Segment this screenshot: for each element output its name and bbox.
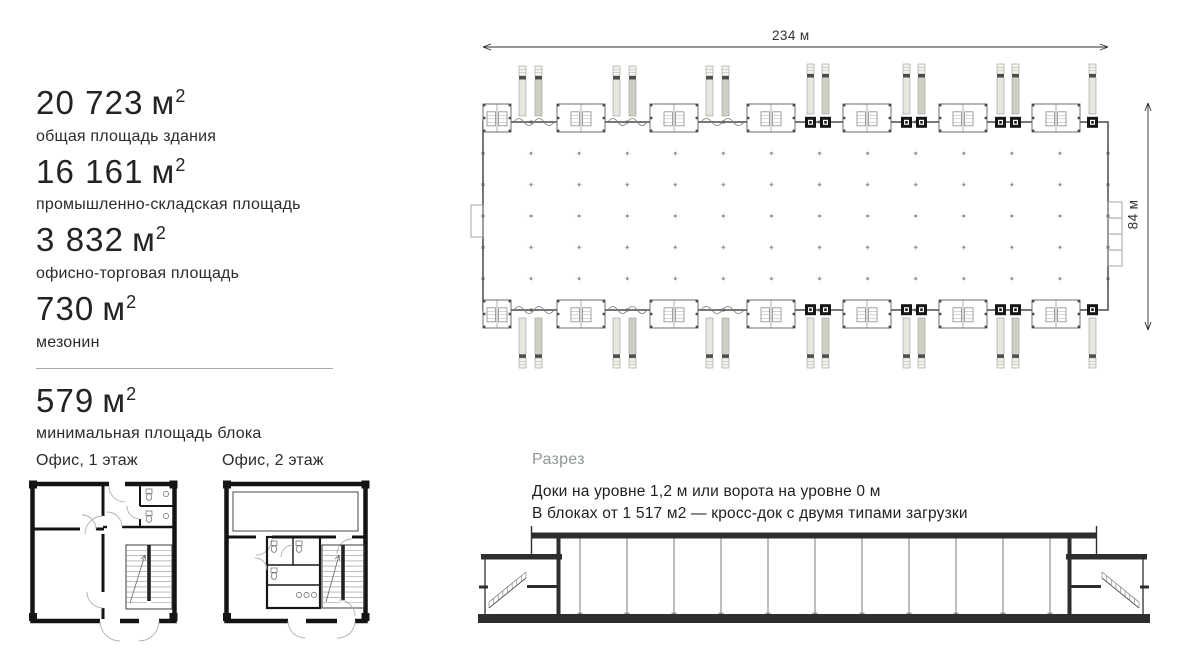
site-plan-drawing	[450, 15, 1190, 375]
dimension-width-label: 234 м	[772, 28, 810, 43]
stat-unit-sup: 2	[175, 155, 186, 175]
stat-unit: м	[152, 153, 176, 190]
stat-office-area: 3 832м2 офисно-торговая площадь	[36, 223, 356, 283]
stat-mezzanine-area: 730м2 мезонин	[36, 292, 356, 352]
stat-label: офисно-торговая площадь	[36, 265, 356, 283]
section-title: Разрез	[532, 451, 585, 469]
stat-value: 730м2	[36, 292, 356, 327]
dimension-height-label: 84 м	[1125, 200, 1140, 230]
stat-unit: м	[102, 290, 126, 327]
stat-value: 20 723м2	[36, 86, 356, 121]
stat-unit-sup: 2	[175, 86, 186, 106]
office-plan-1-drawing	[26, 470, 182, 650]
stats-panel: 20 723м2 общая площадь здания 16 161м2 п…	[36, 86, 356, 452]
office-plan-2-label: Офис, 2 этаж	[222, 452, 324, 470]
stat-value: 3 832м2	[36, 223, 356, 258]
stat-value-number: 3 832	[36, 221, 124, 258]
stat-value-number: 730	[36, 290, 94, 327]
section-drawing	[455, 522, 1165, 642]
stat-unit: м	[152, 84, 176, 121]
office-plan-2-drawing	[218, 470, 374, 650]
stat-total-area: 20 723м2 общая площадь здания	[36, 86, 356, 146]
stat-unit-sup: 2	[156, 223, 167, 243]
stat-min-block-area: 579м2 минимальная площадь блока	[36, 384, 356, 444]
section-note-line-1: Доки на уровне 1,2 м или ворота на уровн…	[532, 483, 881, 501]
stat-value-number: 579	[36, 382, 94, 419]
stat-label: минимальная площадь блока	[36, 425, 356, 443]
stat-value: 579м2	[36, 384, 356, 419]
divider-line	[36, 368, 333, 369]
stat-unit: м	[102, 382, 126, 419]
stat-value-number: 20 723	[36, 84, 144, 121]
office-plan-1-label: Офис, 1 этаж	[36, 452, 138, 470]
brochure-page: 20 723м2 общая площадь здания 16 161м2 п…	[0, 0, 1196, 660]
stat-unit-sup: 2	[126, 292, 137, 312]
stat-value: 16 161м2	[36, 155, 356, 190]
stat-label: промышленно-складская площадь	[36, 196, 356, 214]
stat-value-number: 16 161	[36, 153, 144, 190]
stat-unit-sup: 2	[126, 384, 137, 404]
stat-warehouse-area: 16 161м2 промышленно-складская площадь	[36, 155, 356, 215]
stat-label: общая площадь здания	[36, 128, 356, 146]
section-note-line-2: В блоках от 1 517 м2 — кросс-док с двумя…	[532, 505, 968, 523]
stat-label: мезонин	[36, 334, 356, 352]
stat-unit: м	[132, 221, 156, 258]
